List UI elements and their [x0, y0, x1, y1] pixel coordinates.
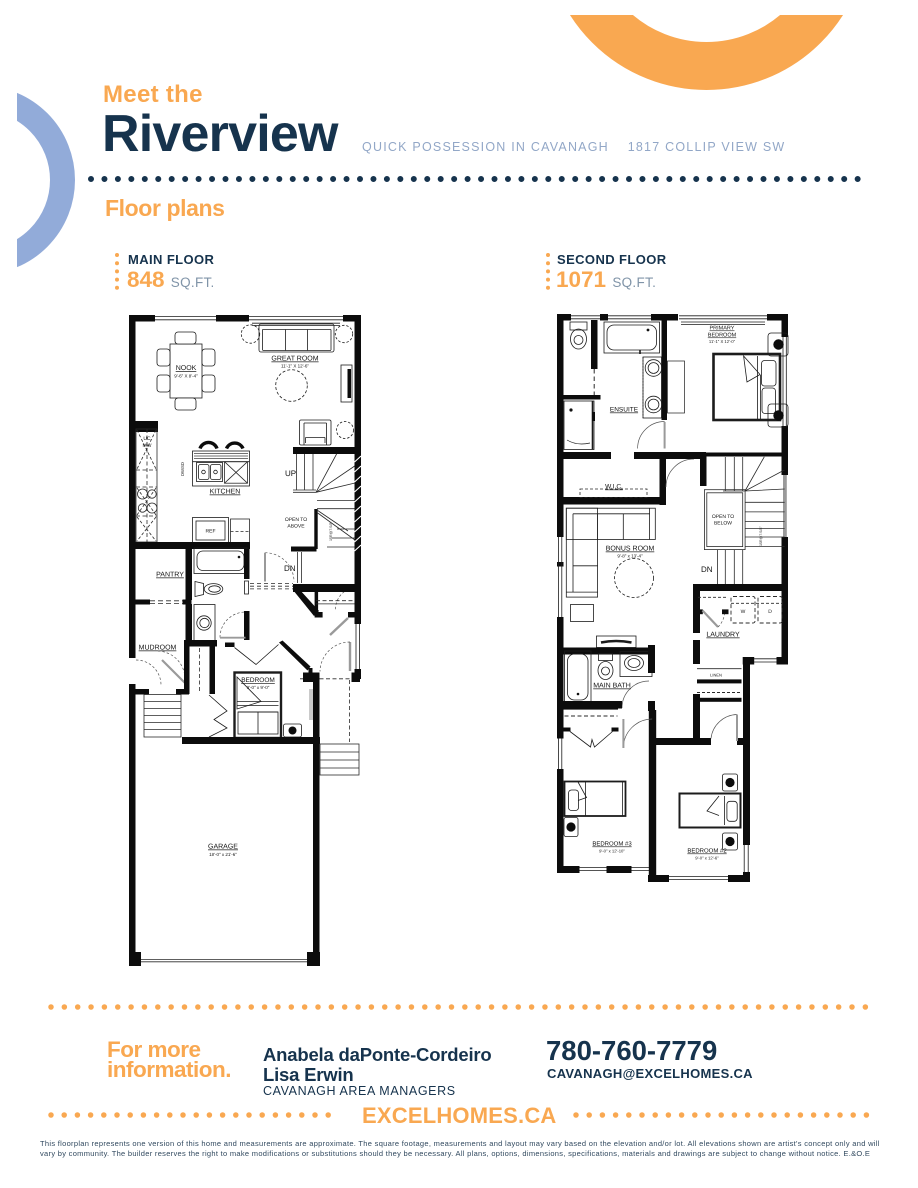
svg-text:DN: DN: [701, 565, 713, 574]
svg-text:PRIMARY: PRIMARY: [710, 326, 735, 332]
svg-text:15R@7-5/8": 15R@7-5/8": [759, 526, 763, 546]
svg-text:MAIN BATH: MAIN BATH: [593, 683, 631, 690]
svg-text:LINEN: LINEN: [710, 673, 722, 678]
svg-text:W: W: [741, 609, 746, 615]
svg-text:D: D: [768, 609, 772, 615]
svg-text:9'-0" x 12'-6": 9'-0" x 12'-6": [695, 856, 719, 861]
svg-text:OPEN TO: OPEN TO: [712, 514, 734, 520]
svg-text:BEDROOM #3: BEDROOM #3: [592, 841, 632, 848]
svg-text:9'-0" x 12'-10": 9'-0" x 12'-10": [599, 849, 625, 854]
svg-text:ENSUITE: ENSUITE: [610, 407, 639, 414]
svg-text:9'-8" x 13'-4": 9'-8" x 13'-4": [617, 554, 643, 559]
svg-text:BONUS ROOM: BONUS ROOM: [606, 546, 655, 553]
svg-text:BEDROOM #2: BEDROOM #2: [687, 848, 727, 855]
svg-text:11'-1" X 12'-0": 11'-1" X 12'-0": [709, 339, 736, 344]
svg-text:LAUNDRY: LAUNDRY: [706, 632, 740, 639]
svg-text:BEDROOM: BEDROOM: [708, 333, 737, 339]
svg-text:BELOW: BELOW: [714, 521, 732, 527]
svg-text:W.I.C.: W.I.C.: [605, 484, 623, 491]
